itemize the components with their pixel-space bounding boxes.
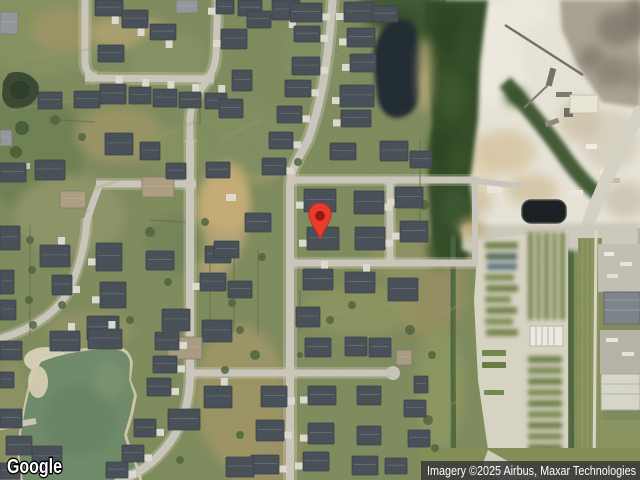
svg-text:Imagery ©2025 Airbus, Maxar Te: Imagery ©2025 Airbus, Maxar Technologies	[427, 463, 636, 478]
svg-text:Google: Google	[7, 456, 62, 478]
